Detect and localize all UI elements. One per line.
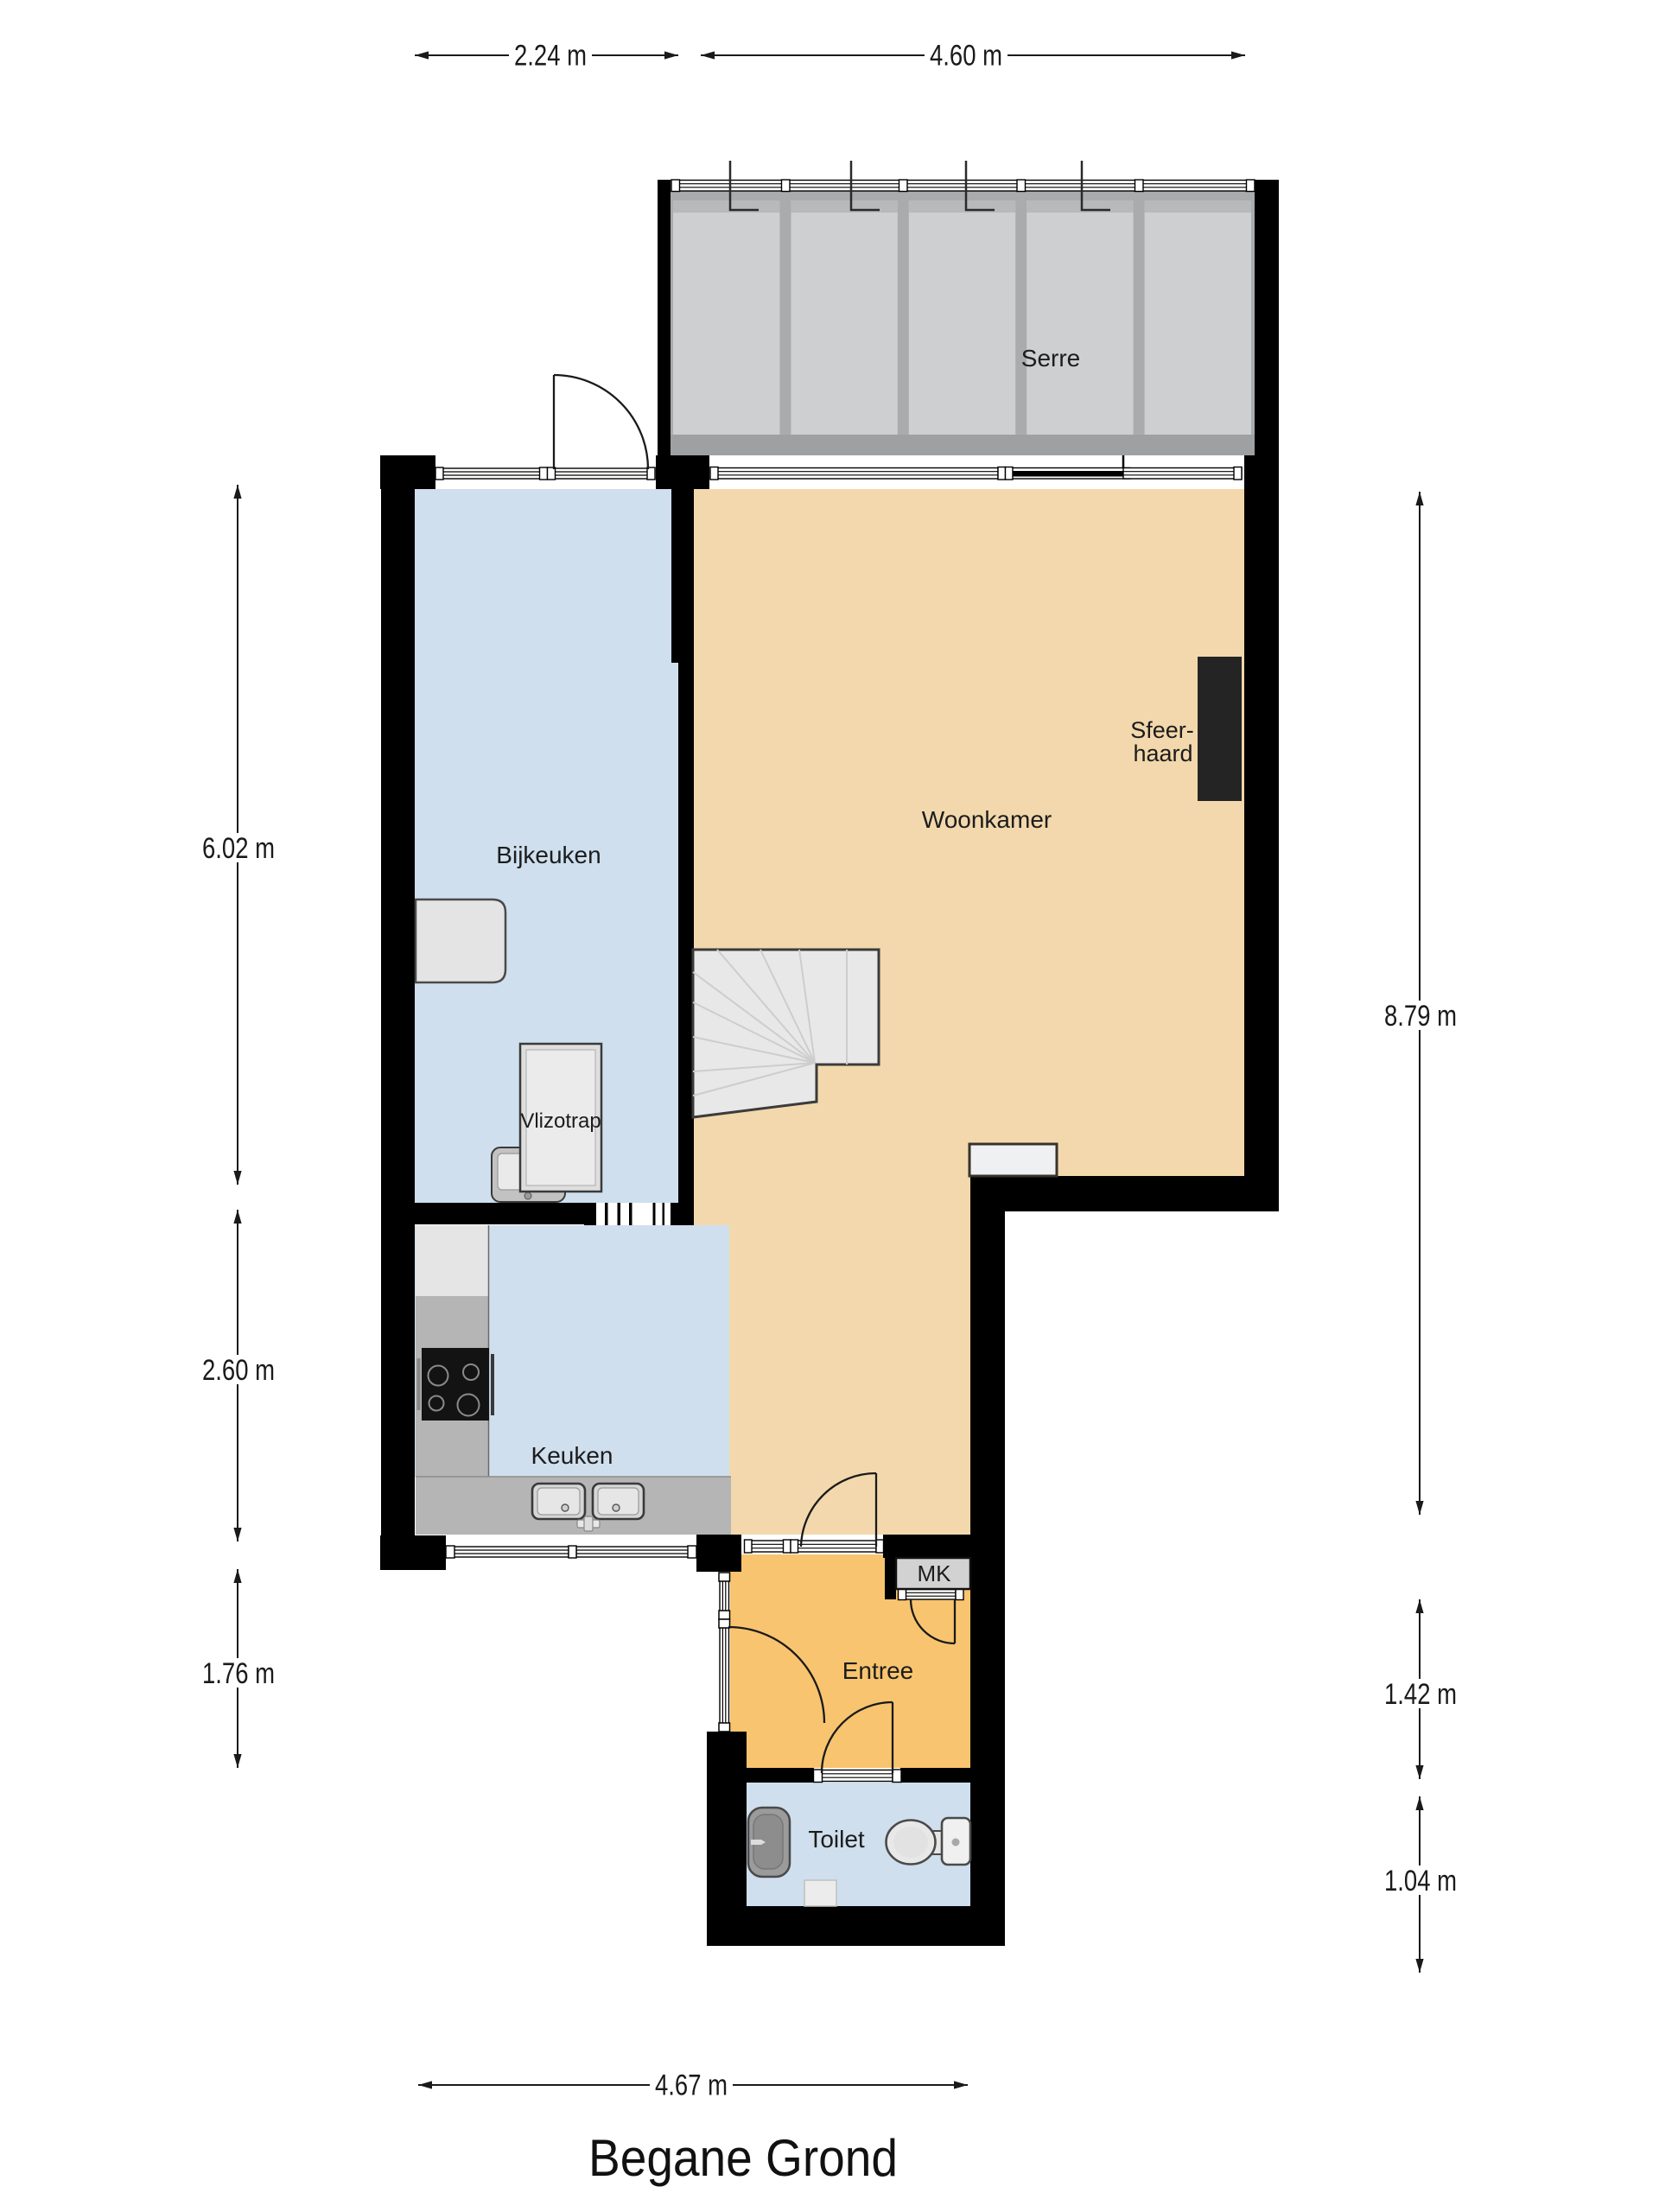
svg-text:4.67 m: 4.67 m [655, 2069, 728, 2102]
svg-text:Bijkeuken: Bijkeuken [496, 842, 601, 868]
svg-text:Keuken: Keuken [531, 1442, 613, 1469]
svg-text:Vlizotrap: Vlizotrap [520, 1109, 601, 1133]
svg-text:MK: MK [918, 1560, 952, 1586]
svg-text:Begane Grond: Begane Grond [588, 2129, 898, 2187]
svg-text:1.76 m: 1.76 m [202, 1657, 275, 1690]
svg-text:Serre: Serre [1021, 345, 1080, 372]
svg-text:Toilet: Toilet [808, 1826, 865, 1853]
svg-text:Entree: Entree [842, 1657, 914, 1684]
svg-text:2.24 m: 2.24 m [514, 40, 587, 73]
svg-text:8.79 m: 8.79 m [1384, 1000, 1457, 1033]
svg-text:6.02 m: 6.02 m [202, 832, 275, 865]
svg-text:4.60 m: 4.60 m [930, 40, 1002, 73]
svg-text:1.04 m: 1.04 m [1384, 1865, 1457, 1897]
svg-text:2.60 m: 2.60 m [202, 1354, 275, 1387]
svg-text:haard: haard [1133, 741, 1192, 766]
svg-text:1.42 m: 1.42 m [1384, 1678, 1457, 1711]
svg-text:Sfeer-: Sfeer- [1130, 717, 1194, 743]
svg-text:Woonkamer: Woonkamer [922, 806, 1052, 833]
